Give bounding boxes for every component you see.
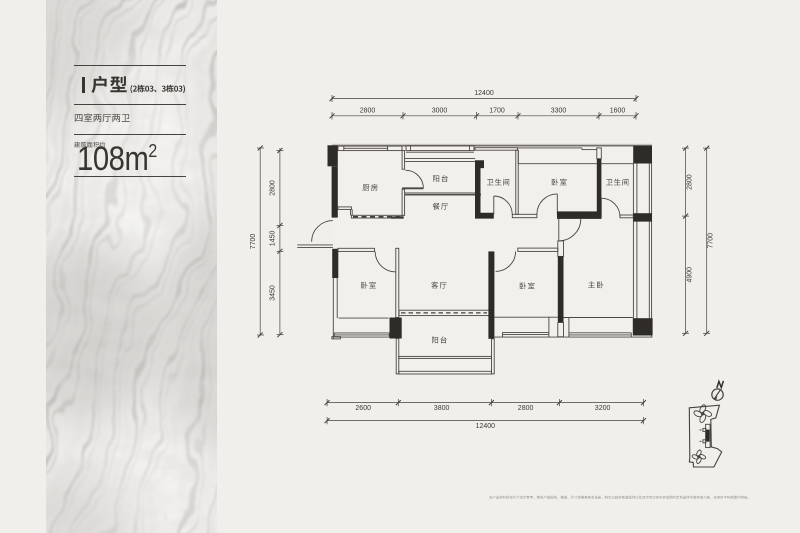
svg-text:1450: 1450 <box>270 231 277 247</box>
svg-text:2800: 2800 <box>518 405 534 412</box>
svg-text:12400: 12400 <box>476 423 496 430</box>
svg-text:3200: 3200 <box>595 405 611 412</box>
svg-text:7700: 7700 <box>708 233 715 249</box>
svg-text:2800: 2800 <box>270 180 277 196</box>
svg-text:3000: 3000 <box>432 108 448 115</box>
svg-text:1600: 1600 <box>610 108 626 115</box>
svg-text:3300: 3300 <box>551 108 567 115</box>
svg-text:4900: 4900 <box>687 267 694 283</box>
svg-text:2600: 2600 <box>355 405 371 412</box>
svg-text:7700: 7700 <box>250 234 257 250</box>
svg-text:1700: 1700 <box>489 108 505 115</box>
svg-text:2800: 2800 <box>687 174 694 190</box>
svg-text:3450: 3450 <box>270 285 277 301</box>
svg-text:12400: 12400 <box>474 90 494 97</box>
svg-text:2800: 2800 <box>360 108 376 115</box>
svg-text:3800: 3800 <box>434 405 450 412</box>
